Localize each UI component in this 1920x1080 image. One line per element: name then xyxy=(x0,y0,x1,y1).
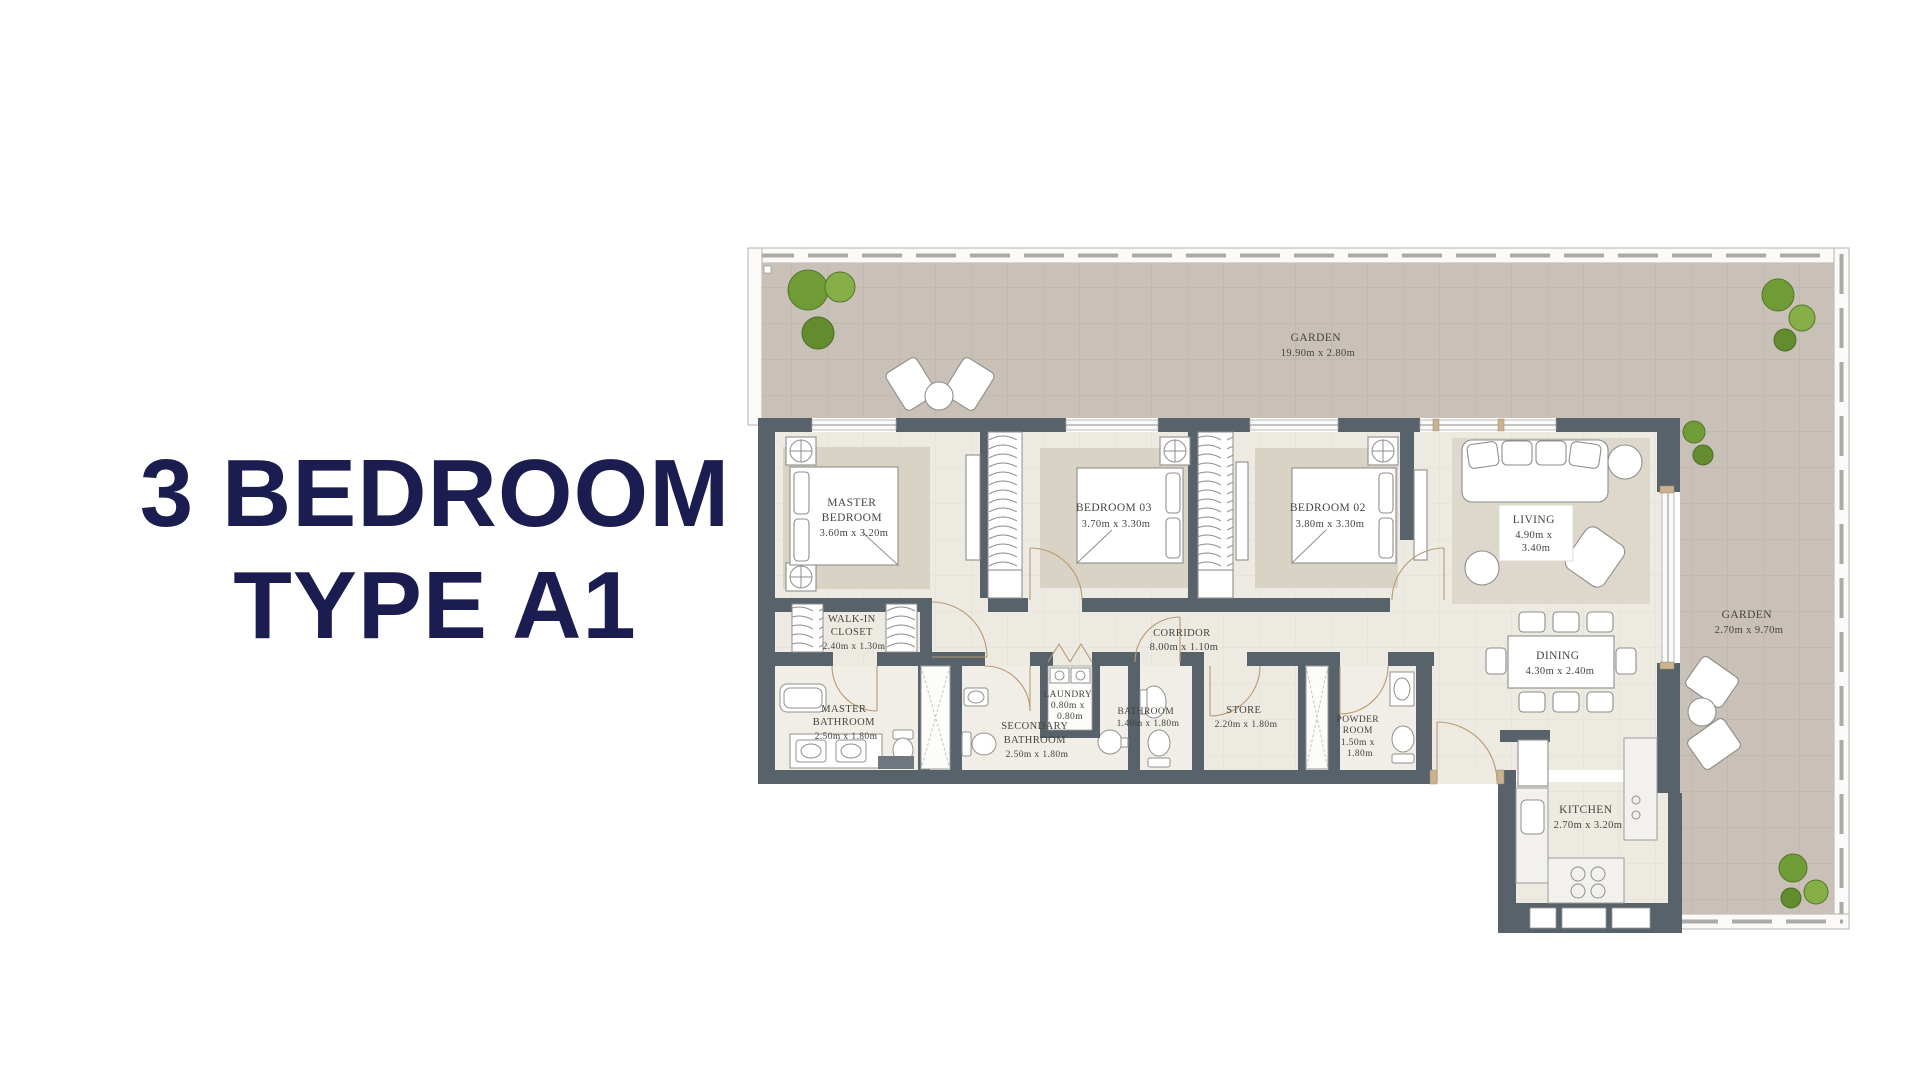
label-master-bedroom: MASTER BEDROOM 3.60m x 3.20m xyxy=(820,493,889,539)
sliding-door-garden xyxy=(1660,486,1674,669)
label-garden-right: GARDEN 2.70m x 9.70m xyxy=(1715,605,1784,636)
label-kitchen: KITCHEN 2.70m x 3.20m xyxy=(1554,800,1623,831)
label-secondary-bathroom: SECONDARY BATHROOM 2.50m x 1.80m xyxy=(1001,716,1073,760)
page: 3 BEDROOM TYPE A1 xyxy=(0,0,1920,1080)
shaft-1 xyxy=(921,666,950,769)
window-bedroom-02 xyxy=(1250,420,1338,430)
label-corridor: CORRIDOR 8.00m x 1.10m xyxy=(1150,623,1219,653)
label-garden-top: GARDEN 19.90m x 2.80m xyxy=(1281,328,1355,359)
shaft-2 xyxy=(1306,666,1328,769)
window-master xyxy=(812,420,896,430)
label-walk-in-closet: WALK-IN CLOSET 2.40m x 1.30m xyxy=(823,609,886,652)
label-master-bathroom: MASTER BATHROOM 2.50m x 1.80m xyxy=(813,699,880,742)
window-living xyxy=(1420,419,1556,431)
window-bedroom-03 xyxy=(1066,420,1158,430)
floor-plan: GARDEN 19.90m x 2.80m GARDEN 2.70m x 9.7… xyxy=(0,0,1920,1080)
